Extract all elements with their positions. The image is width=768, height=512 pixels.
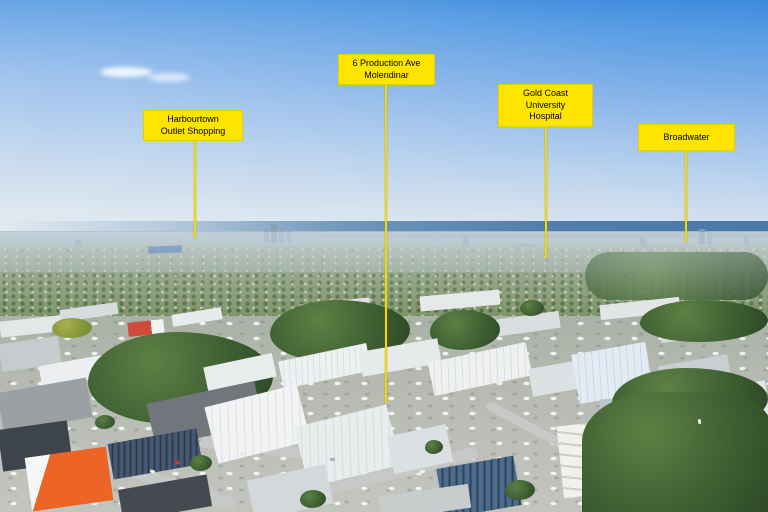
cloud	[148, 73, 190, 82]
leader-line-production-ave	[385, 81, 387, 403]
leader-line-harbourtown	[194, 136, 196, 238]
aerial-photo: Harbourtown Outlet Shopping 6 Production…	[0, 0, 768, 512]
leader-line-hospital	[545, 111, 547, 258]
orange-warehouse	[25, 447, 114, 512]
callout-6-production-ave-molendinar: 6 Production Ave Molendinar	[338, 54, 435, 85]
car	[698, 419, 702, 424]
car	[330, 458, 335, 462]
callout-gold-coast-university-hospital: Gold Coast University Hospital	[498, 84, 593, 127]
callout-harbourtown-outlet-shopping: Harbourtown Outlet Shopping	[143, 110, 243, 141]
car	[240, 452, 245, 456]
cloud	[100, 67, 152, 77]
leader-line-broadwater	[685, 149, 687, 242]
callout-broadwater: Broadwater	[638, 124, 735, 151]
forest	[582, 392, 768, 512]
